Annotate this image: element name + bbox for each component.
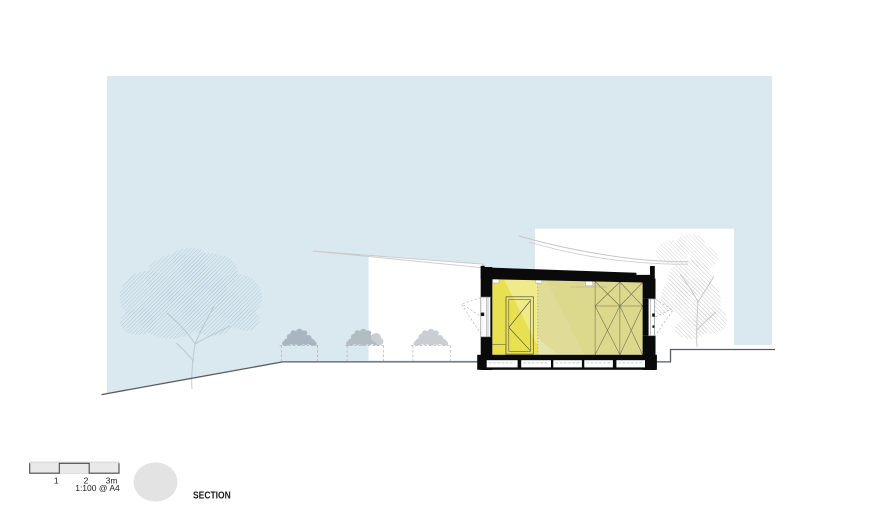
svg-text:1:100 @ A4: 1:100 @ A4 — [75, 483, 120, 493]
svg-text:SECTION: SECTION — [193, 490, 231, 501]
svg-text:1: 1 — [54, 476, 59, 486]
